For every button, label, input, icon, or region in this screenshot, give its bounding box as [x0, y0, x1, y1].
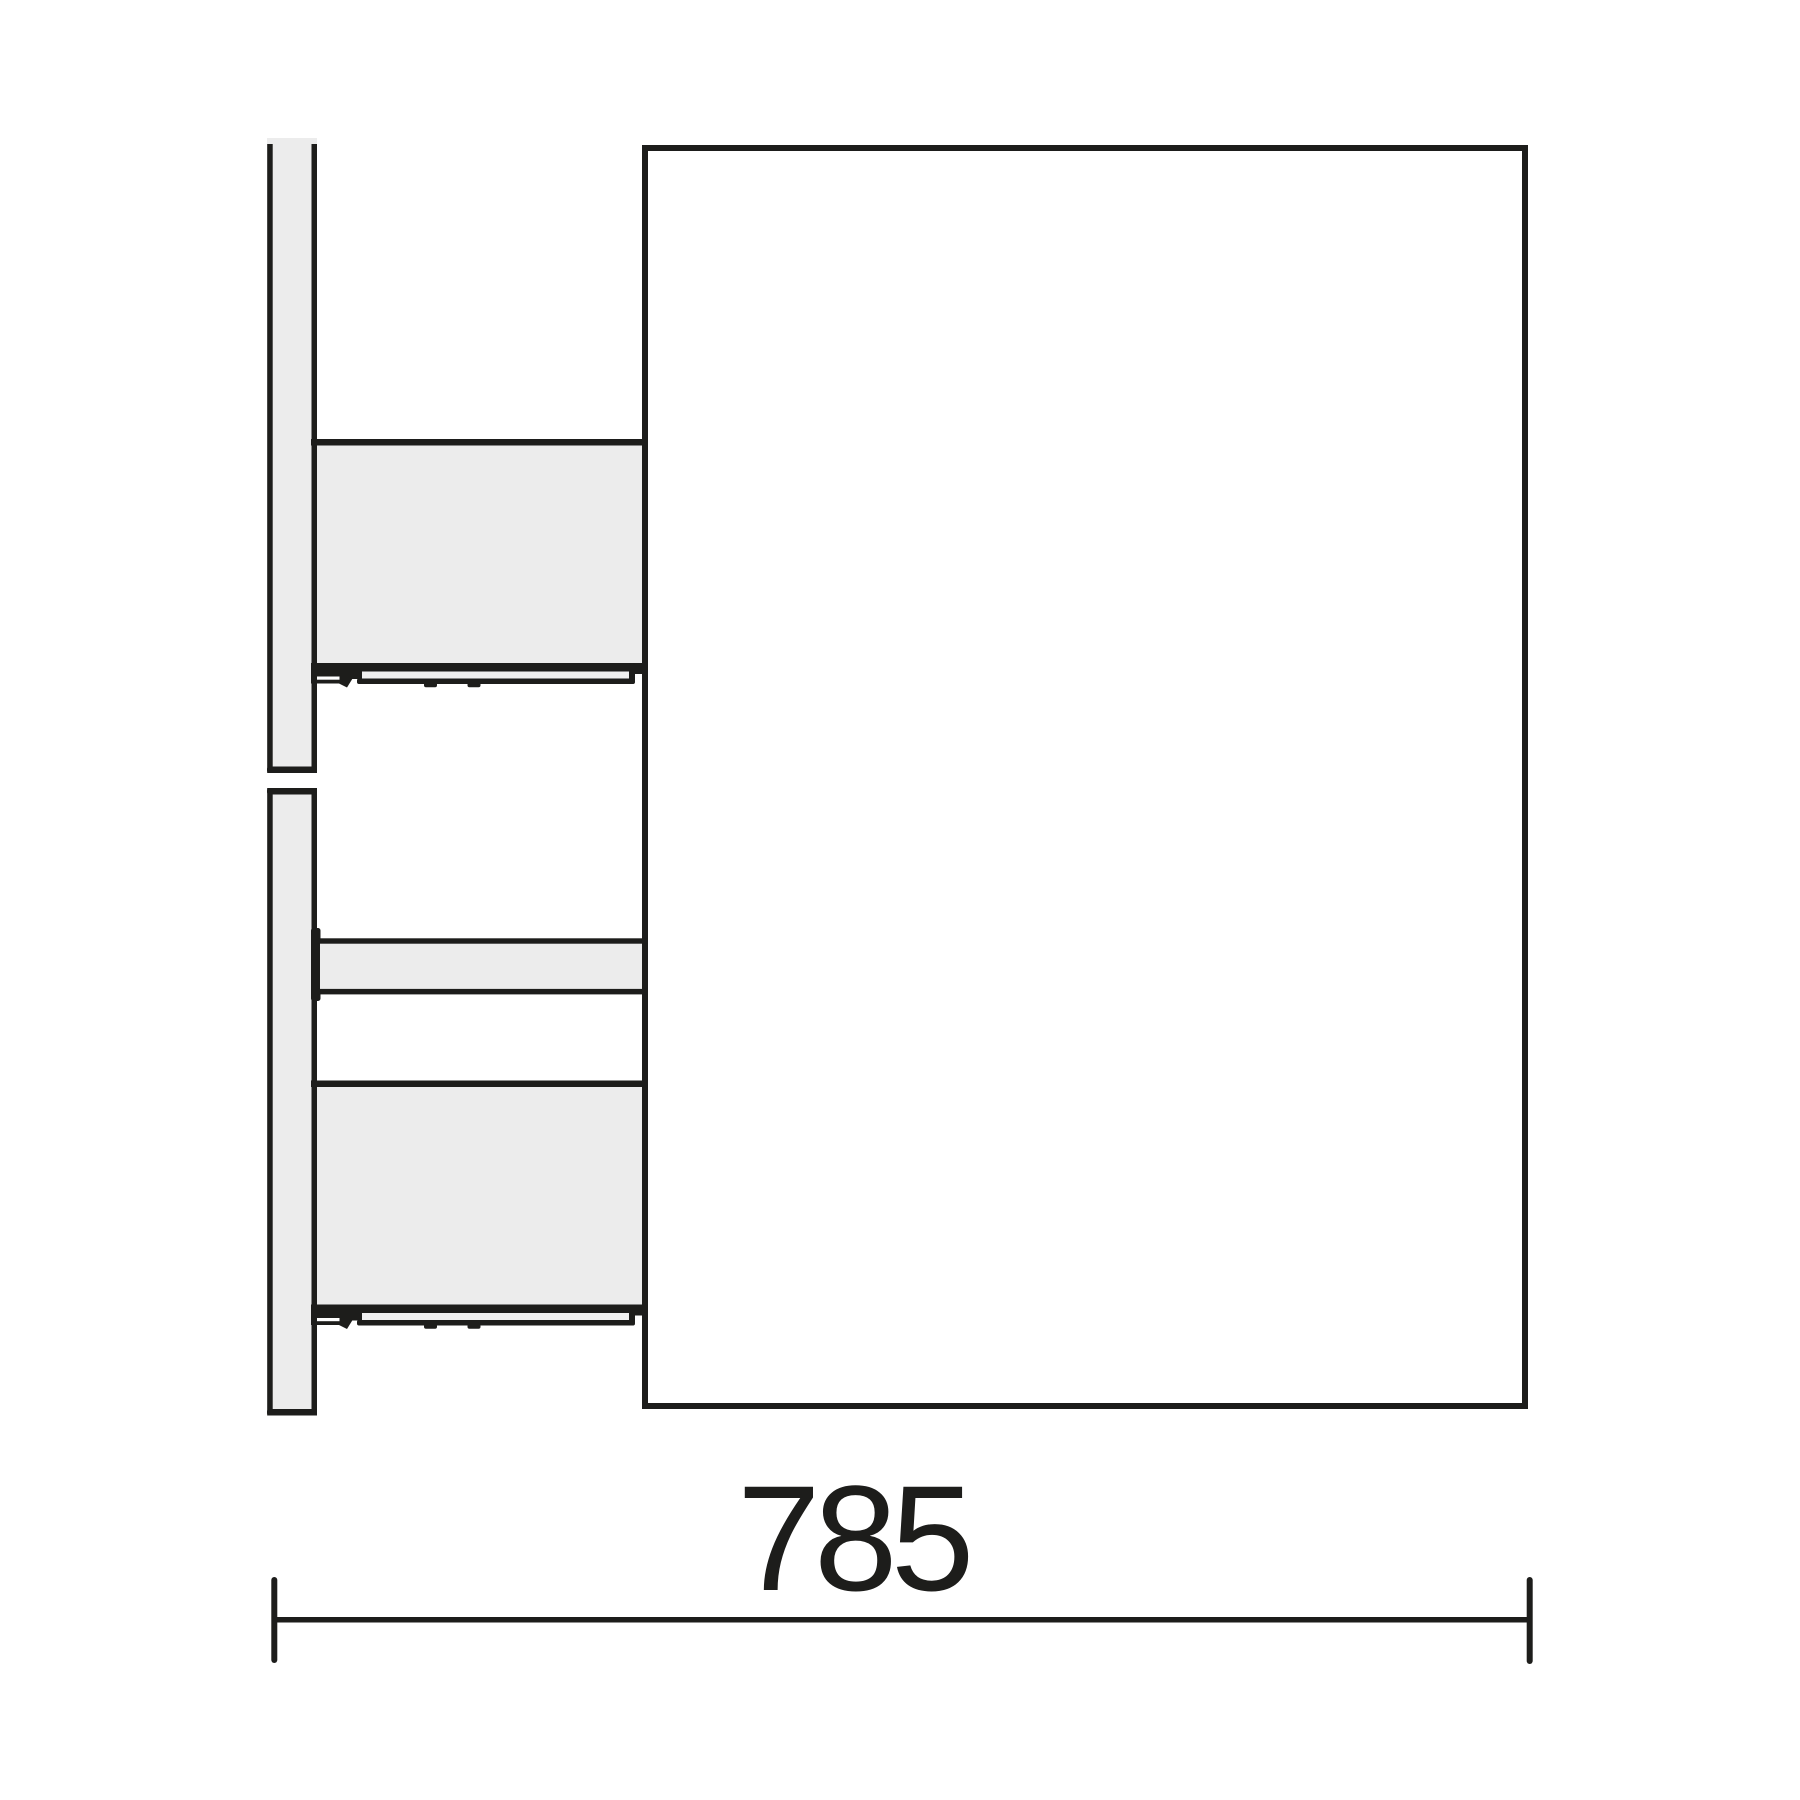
svg-text:785: 785 [737, 1454, 969, 1622]
